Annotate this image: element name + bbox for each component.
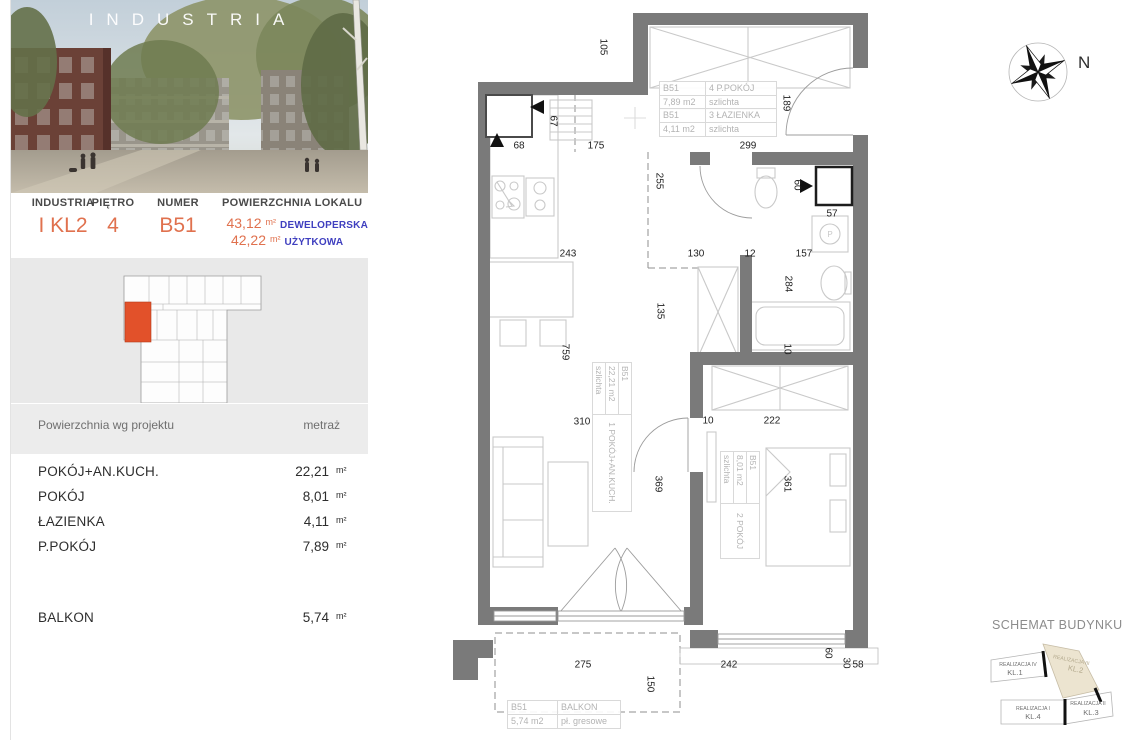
dimension-label: 175	[588, 141, 605, 152]
room-row: ŁAZIENKA4,11m²	[38, 514, 350, 539]
room-tag-lazienka-id: B51	[660, 109, 706, 123]
dimension-label: 68	[513, 141, 524, 152]
compass-rose: N	[1000, 36, 1095, 108]
dimension-label: 275	[575, 660, 592, 671]
room-row-unit: m²	[336, 465, 350, 475]
dimension-label: 284	[783, 276, 794, 293]
room-tag-bedroom-area: 8,01 m2	[733, 452, 746, 503]
room-row-value: 5,74	[285, 610, 329, 625]
room-tag-balkon-name: BALKON	[558, 701, 620, 715]
room-row: POKÓJ+AN.KUCH.22,21m²	[38, 464, 350, 489]
schemat-title: SCHEMAT BUDYNKU	[992, 618, 1127, 632]
room-tag-balkon-floor: pł. gresowe	[558, 715, 620, 728]
brand-wordmark: INDUSTRIA	[89, 10, 298, 29]
highlighted-unit-marker	[125, 302, 151, 342]
area-uzytkowa-value: 42,22	[222, 232, 266, 248]
room-tag-bedroom-wrap: B51 8,01 m2 szlichta 2 POKÓJ	[720, 451, 760, 559]
dimension-label: 130	[688, 249, 705, 260]
floor-overview-map[interactable]	[11, 258, 368, 403]
washer-symbol: P	[827, 230, 832, 239]
area-developerska-value: 43,12	[222, 215, 262, 231]
rooms-list-extra: BALKON5,74m²	[11, 610, 368, 635]
room-row-unit: m²	[336, 611, 350, 621]
rooms-header-name: Powierzchnia wg projektu	[38, 418, 303, 432]
room-tag-lazienka-floor: szlichta	[706, 123, 776, 136]
room-tag-lazienka-area: 4,11 m2	[660, 123, 706, 136]
room-tag-living: B51 22,21 m2 szlichta 1 POKÓJ+AN.KUCH.	[592, 362, 632, 512]
header-col-numer: NUMER	[148, 197, 208, 209]
dimension-label: 135	[655, 303, 666, 320]
area-developerska: 43,12 m² DEWELOPERSKA	[222, 215, 368, 232]
building-schematic: REALIZACJA IV KL.1 REALIZACJA III KL.2 R…	[985, 638, 1127, 738]
room-row-unit: m²	[336, 515, 350, 525]
dimension-label: 10	[782, 343, 793, 354]
room-row-name: ŁAZIENKA	[38, 514, 285, 529]
room-row-unit: m²	[336, 540, 350, 550]
room-tag-bedroom-id: B51	[746, 452, 759, 503]
dimension-label: 150	[645, 676, 656, 693]
area-developerska-unit: m²	[266, 217, 277, 227]
dimension-label: 57	[826, 209, 837, 220]
room-tag-living-id: B51	[618, 363, 631, 414]
room-row-value: 22,21	[285, 464, 329, 479]
building-render-art: INDUSTRIA	[11, 0, 368, 193]
compass-north-label: N	[1078, 53, 1090, 72]
shaft-top-left	[486, 95, 532, 137]
room-tag-balkon-id: B51	[508, 701, 558, 715]
room-tag-balkon: B51 BALKON 5,74 m2 pł. gresowe	[507, 700, 621, 729]
room-tag-ppokoj-id: B51	[660, 82, 706, 96]
dimension-label: 105	[598, 39, 609, 56]
area-uzytkowa: 42,22 m² UŻYTKOWA	[222, 232, 368, 249]
room-row-value: 8,01	[285, 489, 329, 504]
shaft-bathroom	[816, 167, 852, 205]
apartment-card-page: INDUSTRIA INDUSTRIA PIĘTRO NUMER POWIERZ…	[0, 0, 1127, 740]
area-uzytkowa-unit: m²	[270, 234, 281, 244]
rooms-list-main: POKÓJ+AN.KUCH.22,21m²POKÓJ8,01m²ŁAZIENKA…	[11, 464, 368, 564]
room-tag-living-wrap: B51 22,21 m2 szlichta 1 POKÓJ+AN.KUCH.	[592, 362, 632, 512]
room-row-name: P.POKÓJ	[38, 539, 285, 554]
area-uzytkowa-label: UŻYTKOWA	[285, 237, 344, 248]
schemat-kl1-line2: KL.1	[1007, 668, 1022, 677]
room-tag-bedroom-floor: szlichta	[721, 452, 733, 503]
room-tag-lazienka: B51 3 ŁAZIENKA 4,11 m2 szlichta	[659, 108, 777, 137]
room-tag-bedroom: B51 8,01 m2 szlichta 2 POKÓJ	[720, 451, 760, 559]
dimension-label: 60	[823, 647, 834, 658]
room-row: POKÓJ8,01m²	[38, 489, 350, 514]
floor-overview-plan	[11, 258, 368, 403]
dimension-label: 10	[702, 416, 713, 427]
room-row-name: POKÓJ+AN.KUCH.	[38, 464, 285, 479]
room-row-name: BALKON	[38, 610, 285, 625]
dimension-label: 58	[852, 660, 863, 671]
unit-number-value: B51	[148, 214, 208, 238]
room-row: P.POKÓJ7,89m²	[38, 539, 350, 564]
dimension-label: 299	[740, 141, 757, 152]
schemat-kl3-line2: KL.3	[1083, 708, 1098, 717]
room-tag-living-floor: szlichta	[593, 363, 605, 414]
room-row: BALKON5,74m²	[38, 610, 350, 635]
building-render-photo: INDUSTRIA	[11, 0, 368, 193]
schemat-kl3-line1: REALIZACJA II	[1070, 701, 1105, 707]
header-col-pietro: PIĘTRO	[84, 197, 142, 209]
rooms-table-header: Powierzchnia wg projektu metraż	[11, 418, 368, 432]
dimension-label: 157	[796, 249, 813, 260]
dimension-label: 759	[560, 344, 571, 361]
room-tag-balkon-area: 5,74 m2	[508, 715, 558, 728]
rooms-header-metraz: metraż	[303, 418, 340, 432]
room-tag-living-name: 1 POKÓJ+AN.KUCH.	[593, 415, 631, 511]
dimension-label: 369	[653, 476, 664, 493]
dimension-label: 12	[744, 249, 755, 260]
room-row-name: POKÓJ	[38, 489, 285, 504]
room-row-value: 4,11	[285, 514, 329, 529]
unit-floor-value: 4	[84, 214, 142, 238]
dimension-label: 310	[574, 417, 591, 428]
unit-areas: 43,12 m² DEWELOPERSKA 42,22 m² UŻYTKOWA	[222, 215, 368, 249]
dimension-label: 222	[764, 416, 781, 427]
dimension-label: 242	[721, 660, 738, 671]
dimension-label: 255	[654, 173, 665, 190]
room-tag-bedroom-name: 2 POKÓJ	[721, 504, 759, 558]
dimension-label: 30	[841, 657, 852, 668]
room-tag-ppokoj-name: 4 P.POKÓJ	[706, 82, 776, 96]
dimension-label: 361	[782, 476, 793, 493]
room-tag-living-area: 22,21 m2	[605, 363, 618, 414]
header-col-powierzchnia: POWIERZCHNIA LOKALU	[222, 197, 372, 209]
dimension-label: 243	[560, 249, 577, 260]
room-row-value: 7,89	[285, 539, 329, 554]
dimension-label: 67	[548, 115, 559, 126]
room-row-unit: m²	[336, 490, 350, 500]
room-tag-ppokoj: B51 4 P.POKÓJ 7,89 m2 szlichta	[659, 81, 777, 110]
dimension-label: 189	[781, 95, 792, 112]
area-developerska-label: DEWELOPERSKA	[280, 220, 368, 231]
room-tag-lazienka-name: 3 ŁAZIENKA	[706, 109, 776, 123]
dimension-label: 60	[792, 179, 803, 190]
schemat-kl4-line2: KL.4	[1025, 712, 1040, 721]
windows	[494, 611, 845, 644]
